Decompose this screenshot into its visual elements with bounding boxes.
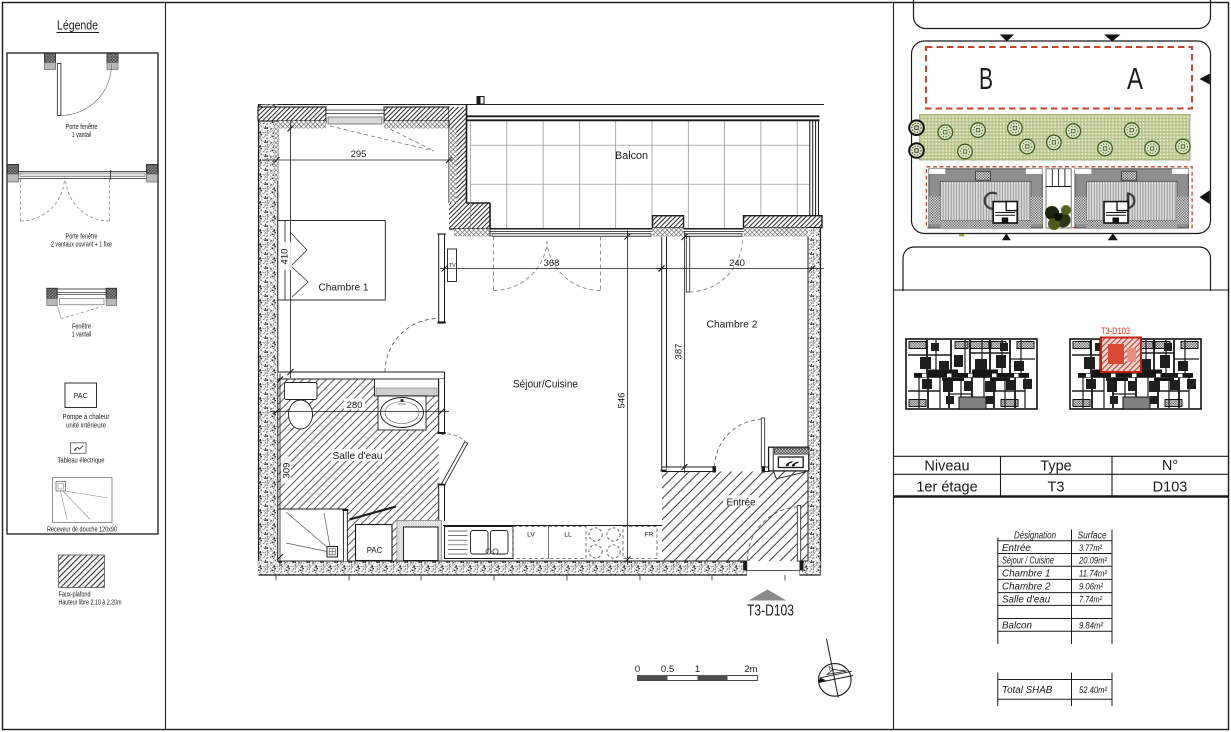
svg-text:Salle d'eau: Salle d'eau [1002, 595, 1051, 606]
svg-text:387: 387 [674, 344, 685, 360]
svg-text:D103: D103 [1153, 480, 1188, 496]
svg-text:B: B [979, 61, 993, 96]
svg-text:546: 546 [617, 393, 628, 409]
svg-text:11.74m²: 11.74m² [1079, 567, 1108, 578]
svg-text:FR: FR [644, 532, 653, 539]
svg-text:Hauteur libre 2.10 à 2.20m: Hauteur libre 2.10 à 2.20m [59, 598, 122, 607]
svg-text:Tableau électrique: Tableau électrique [58, 456, 105, 465]
svg-text:Séjour/Cuisine: Séjour/Cuisine [513, 379, 578, 391]
svg-text:1er étage: 1er étage [916, 480, 977, 496]
svg-text:9.06m²: 9.06m² [1079, 581, 1104, 592]
svg-text:Balcon: Balcon [1002, 620, 1032, 631]
svg-text:LL: LL [564, 532, 572, 539]
svg-text:Niveau: Niveau [924, 459, 969, 475]
svg-text:PAC: PAC [74, 391, 89, 400]
svg-text:Séjour / Cuisine: Séjour / Cuisine [1002, 556, 1054, 567]
svg-text:295: 295 [351, 149, 367, 160]
svg-text:1 vantail: 1 vantail [72, 130, 92, 139]
svg-text:0: 0 [635, 664, 640, 675]
svg-text:T3-D103: T3-D103 [747, 603, 794, 620]
svg-text:410: 410 [280, 249, 291, 265]
svg-text:3.77m²: 3.77m² [1079, 542, 1103, 553]
svg-text:1: 1 [695, 664, 700, 675]
svg-text:LV: LV [527, 532, 535, 539]
svg-text:Balcon: Balcon [615, 150, 648, 162]
svg-text:Entrée: Entrée [1002, 543, 1031, 554]
svg-text:368: 368 [544, 258, 560, 269]
svg-text:Receveur de douche 120x90: Receveur de douche 120x90 [47, 525, 117, 534]
svg-text:Surface: Surface [1078, 530, 1107, 541]
svg-text:9.84m²: 9.84m² [1079, 619, 1104, 630]
svg-text:0.5: 0.5 [661, 664, 674, 675]
svg-text:7.74m²: 7.74m² [1079, 594, 1103, 605]
svg-text:309: 309 [282, 463, 293, 479]
svg-text:52.40m²: 52.40m² [1079, 684, 1108, 695]
svg-text:240: 240 [729, 258, 745, 269]
svg-text:Légende: Légende [57, 19, 98, 33]
svg-text:280: 280 [347, 400, 363, 411]
svg-text:20.09m²: 20.09m² [1078, 555, 1108, 566]
svg-text:PAC: PAC [367, 546, 383, 555]
svg-text:Désignation: Désignation [1014, 530, 1056, 541]
svg-text:2m: 2m [744, 664, 757, 675]
svg-text:N°: N° [1162, 458, 1178, 474]
svg-text:Chambre 2: Chambre 2 [1002, 582, 1051, 593]
svg-text:Salle d'eau: Salle d'eau [333, 450, 383, 462]
svg-text:Entrée: Entrée [727, 497, 756, 509]
svg-text:unité intérieure: unité intérieure [66, 421, 106, 430]
svg-text:Chambre 2: Chambre 2 [707, 319, 758, 331]
svg-text:2 vantaux ouvrant + 1 fixe: 2 vantaux ouvrant + 1 fixe [51, 240, 112, 249]
svg-text:Chambre 1: Chambre 1 [1002, 568, 1050, 579]
svg-text:Type: Type [1040, 459, 1071, 475]
svg-text:T3-D103: T3-D103 [1101, 326, 1130, 336]
svg-text:T3: T3 [1048, 480, 1065, 496]
svg-text:A: A [1127, 61, 1143, 96]
svg-text:Total SHAB: Total SHAB [1002, 685, 1053, 696]
svg-text:1 vantail: 1 vantail [72, 330, 92, 339]
svg-text:Chambre 1: Chambre 1 [319, 282, 369, 294]
